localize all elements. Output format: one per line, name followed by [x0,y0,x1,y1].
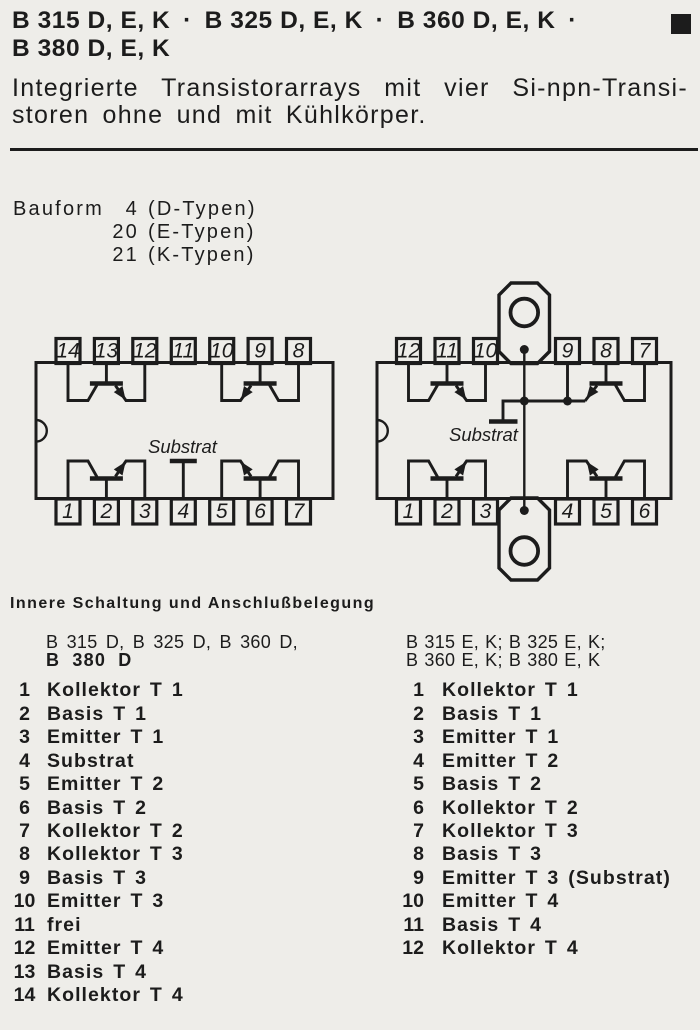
svg-text:2: 2 [100,500,113,523]
svg-text:13: 13 [95,340,119,363]
svg-text:2: 2 [440,500,453,523]
svg-text:5: 5 [216,500,228,523]
svg-text:3: 3 [139,500,151,523]
svg-text:12: 12 [397,340,421,363]
svg-text:9: 9 [254,340,266,363]
svg-text:1: 1 [403,500,415,523]
svg-text:7: 7 [293,500,306,523]
svg-text:11: 11 [436,340,458,363]
svg-text:3: 3 [480,500,492,523]
svg-text:10: 10 [474,340,498,363]
svg-text:Substrat: Substrat [449,424,519,445]
svg-text:12: 12 [133,340,157,363]
svg-text:4: 4 [562,500,574,523]
svg-text:11: 11 [172,340,194,363]
svg-text:6: 6 [639,500,651,523]
svg-text:5: 5 [600,500,612,523]
svg-text:8: 8 [600,340,612,363]
svg-text:14: 14 [56,340,79,363]
svg-text:1: 1 [62,500,74,523]
svg-text:8: 8 [293,340,305,363]
svg-text:4: 4 [177,500,189,523]
svg-text:9: 9 [562,340,574,363]
svg-text:7: 7 [639,340,652,363]
svg-text:6: 6 [254,500,266,523]
svg-text:10: 10 [210,340,234,363]
svg-text:Substrat: Substrat [148,436,218,457]
